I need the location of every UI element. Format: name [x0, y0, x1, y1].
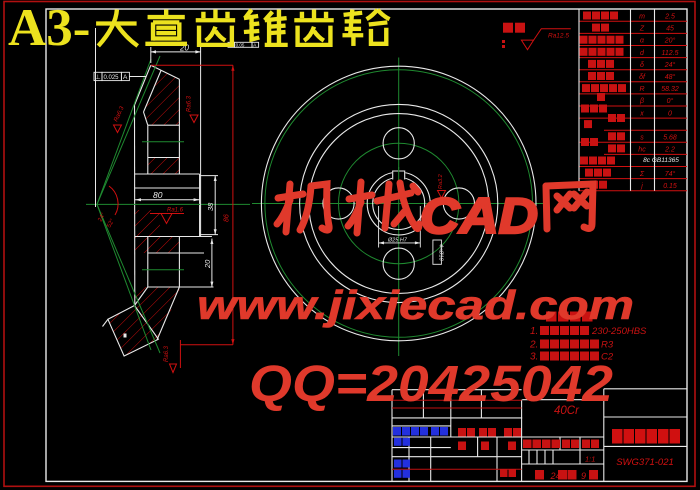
svg-text:www.jixiecad.com: www.jixiecad.com [197, 282, 634, 328]
svg-text:m: m [639, 14, 645, 21]
svg-text:0.025: 0.025 [104, 75, 120, 81]
svg-text:80: 80 [153, 190, 163, 200]
svg-text:A3-: A3- [8, 0, 90, 57]
svg-text:hc: hc [638, 147, 646, 154]
svg-text:CAD: CAD [420, 188, 538, 244]
svg-text:24: 24 [550, 471, 561, 481]
svg-text:x: x [639, 110, 644, 117]
svg-text:R: R [639, 86, 644, 93]
svg-text:Ra6.3: Ra6.3 [164, 345, 170, 362]
svg-text:45: 45 [666, 26, 674, 33]
svg-text:0: 0 [668, 110, 672, 117]
svg-text:2.: 2. [529, 340, 538, 351]
svg-text:Ra3.2: Ra3.2 [438, 174, 444, 189]
svg-text:δ: δ [640, 62, 644, 69]
svg-text:2.2: 2.2 [664, 147, 675, 154]
svg-text:β: β [639, 98, 644, 105]
svg-text:9: 9 [581, 471, 586, 481]
svg-text:20: 20 [203, 259, 212, 269]
svg-text:74°: 74° [665, 170, 676, 178]
svg-text:5.68: 5.68 [663, 135, 677, 142]
svg-text:1:1: 1:1 [585, 455, 595, 464]
svg-text:Ra6.3: Ra6.3 [187, 95, 193, 112]
svg-text:8c GB11365: 8c GB11365 [643, 157, 679, 164]
svg-text:0.05: 0.05 [236, 43, 245, 48]
svg-text:j: j [640, 183, 643, 190]
svg-text:0°: 0° [667, 97, 674, 105]
svg-text:2.5: 2.5 [664, 14, 675, 21]
svg-text:48°: 48° [665, 73, 676, 81]
svg-text:A: A [253, 43, 256, 48]
svg-text:38: 38 [206, 202, 215, 211]
svg-text:SWG371-021: SWG371-021 [616, 457, 674, 468]
svg-text:86: 86 [224, 214, 231, 222]
svg-text:Ra1.6: Ra1.6 [167, 208, 184, 214]
svg-text:0.15: 0.15 [663, 183, 677, 190]
svg-text:⊥: ⊥ [95, 74, 101, 81]
svg-text:R3: R3 [601, 340, 614, 351]
svg-text:112.5: 112.5 [662, 50, 679, 57]
svg-text:QQ=20425042: QQ=20425042 [249, 355, 613, 412]
svg-text:A: A [123, 74, 128, 81]
svg-text:Z: Z [639, 26, 645, 33]
svg-text:20°: 20° [664, 37, 676, 45]
svg-text:Ra12.5: Ra12.5 [548, 33, 569, 40]
svg-text:4×Ø18: 4×Ø18 [438, 244, 444, 262]
svg-text:Ø25 H7: Ø25 H7 [387, 238, 408, 244]
svg-text:58.32: 58.32 [661, 86, 679, 93]
svg-text:s: s [640, 135, 644, 142]
svg-text:24°: 24° [664, 61, 676, 69]
svg-text:Σ: Σ [639, 171, 645, 178]
